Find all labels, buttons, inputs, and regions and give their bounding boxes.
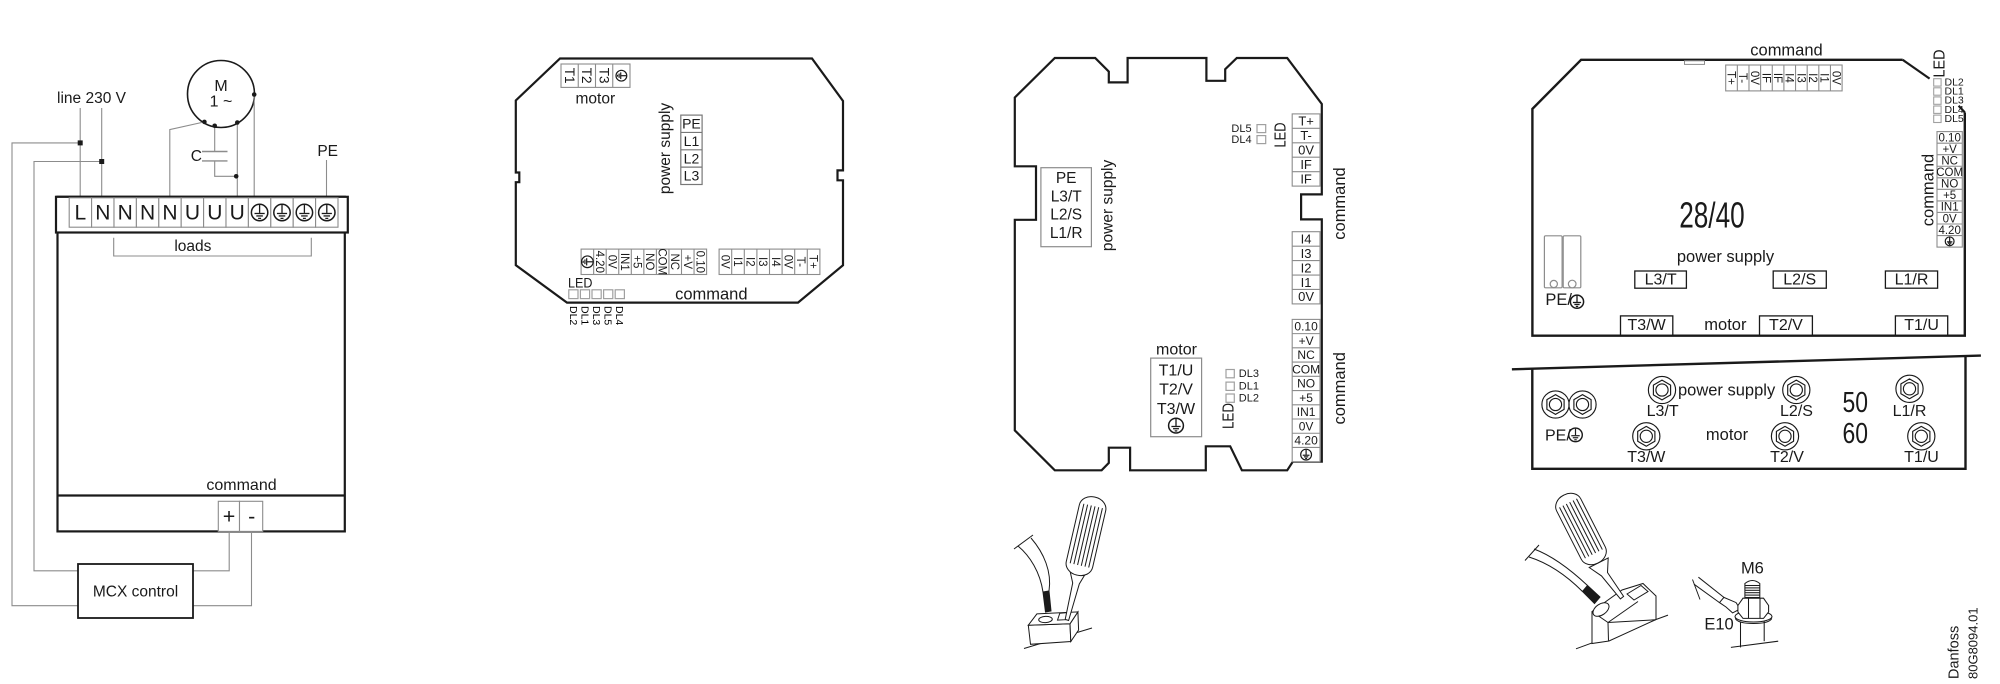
svg-text:L3: L3	[684, 168, 700, 184]
svg-text:LED: LED	[1221, 403, 1238, 429]
svg-text:PE/: PE/	[1545, 427, 1571, 444]
svg-text:80G8094.01: 80G8094.01	[1966, 607, 1981, 679]
svg-text:motor: motor	[1704, 316, 1747, 334]
svg-text:I4: I4	[1301, 231, 1312, 246]
svg-text:DL3: DL3	[1239, 368, 1259, 380]
svg-text:T3/W: T3/W	[1628, 317, 1667, 334]
svg-text:DL2: DL2	[567, 306, 579, 325]
svg-text:LED: LED	[1273, 123, 1290, 148]
svg-text:L1/R: L1/R	[1893, 403, 1927, 420]
svg-text:L2: L2	[684, 150, 700, 166]
svg-text:0V: 0V	[605, 255, 617, 269]
svg-text:L3/T: L3/T	[1051, 188, 1083, 205]
svg-text:T3/W: T3/W	[1157, 401, 1196, 418]
svg-text:+: +	[223, 505, 236, 529]
svg-text:4.20: 4.20	[1938, 225, 1960, 237]
svg-text:0V: 0V	[1298, 289, 1314, 304]
svg-text:0V: 0V	[1829, 71, 1841, 85]
svg-text:60: 60	[1843, 418, 1869, 450]
svg-text:IF: IF	[1300, 171, 1312, 186]
svg-text:L1: L1	[684, 133, 700, 149]
svg-text:DL5: DL5	[1231, 123, 1251, 135]
svg-text:DL1: DL1	[1239, 381, 1259, 393]
svg-text:+5: +5	[631, 255, 643, 268]
svg-text:U: U	[185, 202, 200, 225]
svg-text:MCX control: MCX control	[93, 584, 178, 601]
svg-text:I2: I2	[1806, 73, 1818, 83]
svg-text:command: command	[1920, 154, 1938, 226]
svg-text:N: N	[95, 202, 110, 225]
svg-text:4.20: 4.20	[1294, 434, 1318, 448]
svg-text:command: command	[1331, 352, 1349, 424]
svg-text:T+: T+	[1298, 114, 1314, 129]
svg-text:L1/R: L1/R	[1895, 272, 1929, 289]
svg-text:NO: NO	[1297, 377, 1315, 391]
svg-text:T2/V: T2/V	[1769, 317, 1803, 334]
svg-text:DL5: DL5	[602, 306, 614, 325]
svg-text:0.10: 0.10	[1938, 132, 1960, 144]
svg-text:PE: PE	[682, 116, 701, 132]
svg-text:loads: loads	[174, 238, 211, 255]
svg-text:T2/V: T2/V	[1770, 449, 1804, 466]
svg-text:M: M	[214, 78, 227, 95]
svg-text:NC: NC	[1941, 156, 1958, 168]
svg-text:I3: I3	[1794, 73, 1806, 83]
svg-text:L1/R: L1/R	[1050, 225, 1083, 242]
svg-text:IF: IF	[1759, 73, 1771, 83]
svg-text:0V: 0V	[1748, 71, 1760, 85]
svg-text:I2: I2	[744, 257, 756, 267]
svg-text:motor: motor	[575, 91, 615, 108]
svg-text:+V: +V	[1942, 144, 1957, 156]
svg-text:command: command	[1750, 42, 1822, 60]
svg-text:command: command	[675, 286, 747, 304]
svg-text:motor: motor	[1156, 342, 1198, 359]
svg-text:T1/U: T1/U	[1159, 363, 1194, 380]
svg-text:DL4: DL4	[1231, 134, 1251, 146]
svg-text:power supply: power supply	[1678, 381, 1776, 399]
svg-text:I4: I4	[769, 257, 781, 267]
svg-text:I3: I3	[756, 257, 768, 267]
svg-text:command: command	[1331, 167, 1349, 239]
svg-text:Danfoss: Danfoss	[1947, 626, 1963, 679]
svg-text:I1: I1	[1818, 73, 1830, 83]
svg-text:L2/S: L2/S	[1780, 403, 1813, 420]
svg-text:0V: 0V	[1298, 143, 1314, 158]
svg-text:T1/U: T1/U	[1904, 449, 1939, 466]
svg-text:power supply: power supply	[1100, 159, 1117, 251]
svg-text:0V: 0V	[1299, 419, 1314, 433]
svg-text:COM: COM	[1936, 167, 1963, 179]
svg-text:0V: 0V	[718, 255, 730, 269]
svg-text:DL3: DL3	[590, 306, 602, 325]
svg-text:T2/V: T2/V	[1159, 382, 1193, 399]
svg-text:I1: I1	[1301, 275, 1312, 290]
svg-text:N: N	[162, 202, 177, 225]
svg-text:I4: I4	[1783, 73, 1795, 83]
svg-text:50: 50	[1843, 387, 1869, 419]
svg-text:1 ~: 1 ~	[210, 94, 233, 111]
svg-text:L2/S: L2/S	[1783, 272, 1816, 289]
svg-text:+V: +V	[1299, 334, 1314, 348]
svg-text:T+: T+	[807, 255, 819, 269]
svg-text:I1: I1	[731, 257, 743, 267]
svg-text:T3: T3	[596, 68, 611, 84]
svg-text:DL1: DL1	[578, 306, 590, 325]
svg-text:PE: PE	[317, 143, 338, 160]
svg-text:+5: +5	[1943, 190, 1956, 202]
svg-text:IN1: IN1	[1297, 405, 1316, 419]
svg-text:power supply: power supply	[1677, 248, 1775, 266]
svg-text:DL2: DL2	[1239, 393, 1259, 405]
svg-text:L3/T: L3/T	[1645, 272, 1677, 289]
svg-text:4.20: 4.20	[593, 251, 605, 273]
svg-text:IN1: IN1	[618, 253, 630, 271]
svg-text:-: -	[248, 505, 255, 529]
svg-text:LED: LED	[568, 275, 593, 291]
svg-text:T2: T2	[579, 68, 594, 84]
svg-text:command: command	[206, 477, 276, 494]
svg-text:U: U	[230, 202, 245, 225]
svg-text:DL4: DL4	[613, 306, 625, 325]
svg-text:N: N	[118, 202, 133, 225]
svg-text:COM: COM	[1292, 362, 1320, 376]
svg-text:NO: NO	[1941, 179, 1958, 191]
svg-text:T-: T-	[794, 257, 806, 267]
svg-text:L2/S: L2/S	[1050, 207, 1082, 224]
svg-text:NC: NC	[668, 253, 680, 270]
svg-text:I2: I2	[1301, 260, 1312, 275]
svg-text:IN1: IN1	[1941, 202, 1959, 214]
svg-text:DL5: DL5	[1945, 113, 1964, 125]
svg-text:0.10: 0.10	[693, 251, 705, 273]
svg-text:L3/T: L3/T	[1647, 403, 1679, 420]
svg-text:0V: 0V	[781, 255, 793, 269]
svg-text:L: L	[75, 202, 87, 225]
svg-text:T-: T-	[1300, 128, 1312, 143]
svg-text:T1: T1	[562, 68, 577, 84]
svg-text:N: N	[140, 202, 155, 225]
svg-text:NO: NO	[643, 253, 655, 270]
svg-text:M6: M6	[1741, 560, 1764, 578]
svg-text:0.10: 0.10	[1294, 320, 1318, 334]
svg-text:C: C	[191, 148, 202, 165]
svg-text:line 230 V: line 230 V	[57, 90, 127, 107]
svg-text:PE/: PE/	[1545, 291, 1572, 309]
svg-text:I3: I3	[1301, 246, 1312, 261]
svg-text:T3/W: T3/W	[1627, 449, 1666, 466]
svg-text:T-: T-	[1736, 73, 1748, 83]
svg-text:IF: IF	[1300, 157, 1312, 172]
svg-text:NC: NC	[1297, 348, 1315, 362]
svg-text:+5: +5	[1299, 391, 1313, 405]
svg-text:T+: T+	[1724, 71, 1736, 85]
svg-text:0V: 0V	[1943, 213, 1957, 225]
svg-text:power supply: power supply	[657, 103, 674, 195]
svg-text:U: U	[207, 202, 222, 225]
svg-text:+V: +V	[681, 255, 693, 270]
svg-text:E10: E10	[1704, 616, 1733, 634]
svg-text:COM: COM	[656, 248, 668, 275]
svg-text:LED: LED	[1932, 50, 1949, 78]
svg-text:28/40: 28/40	[1679, 195, 1745, 236]
svg-text:PE: PE	[1056, 170, 1077, 187]
svg-text:motor: motor	[1706, 426, 1749, 444]
svg-text:IF: IF	[1771, 73, 1783, 83]
svg-text:T1/U: T1/U	[1904, 317, 1939, 334]
